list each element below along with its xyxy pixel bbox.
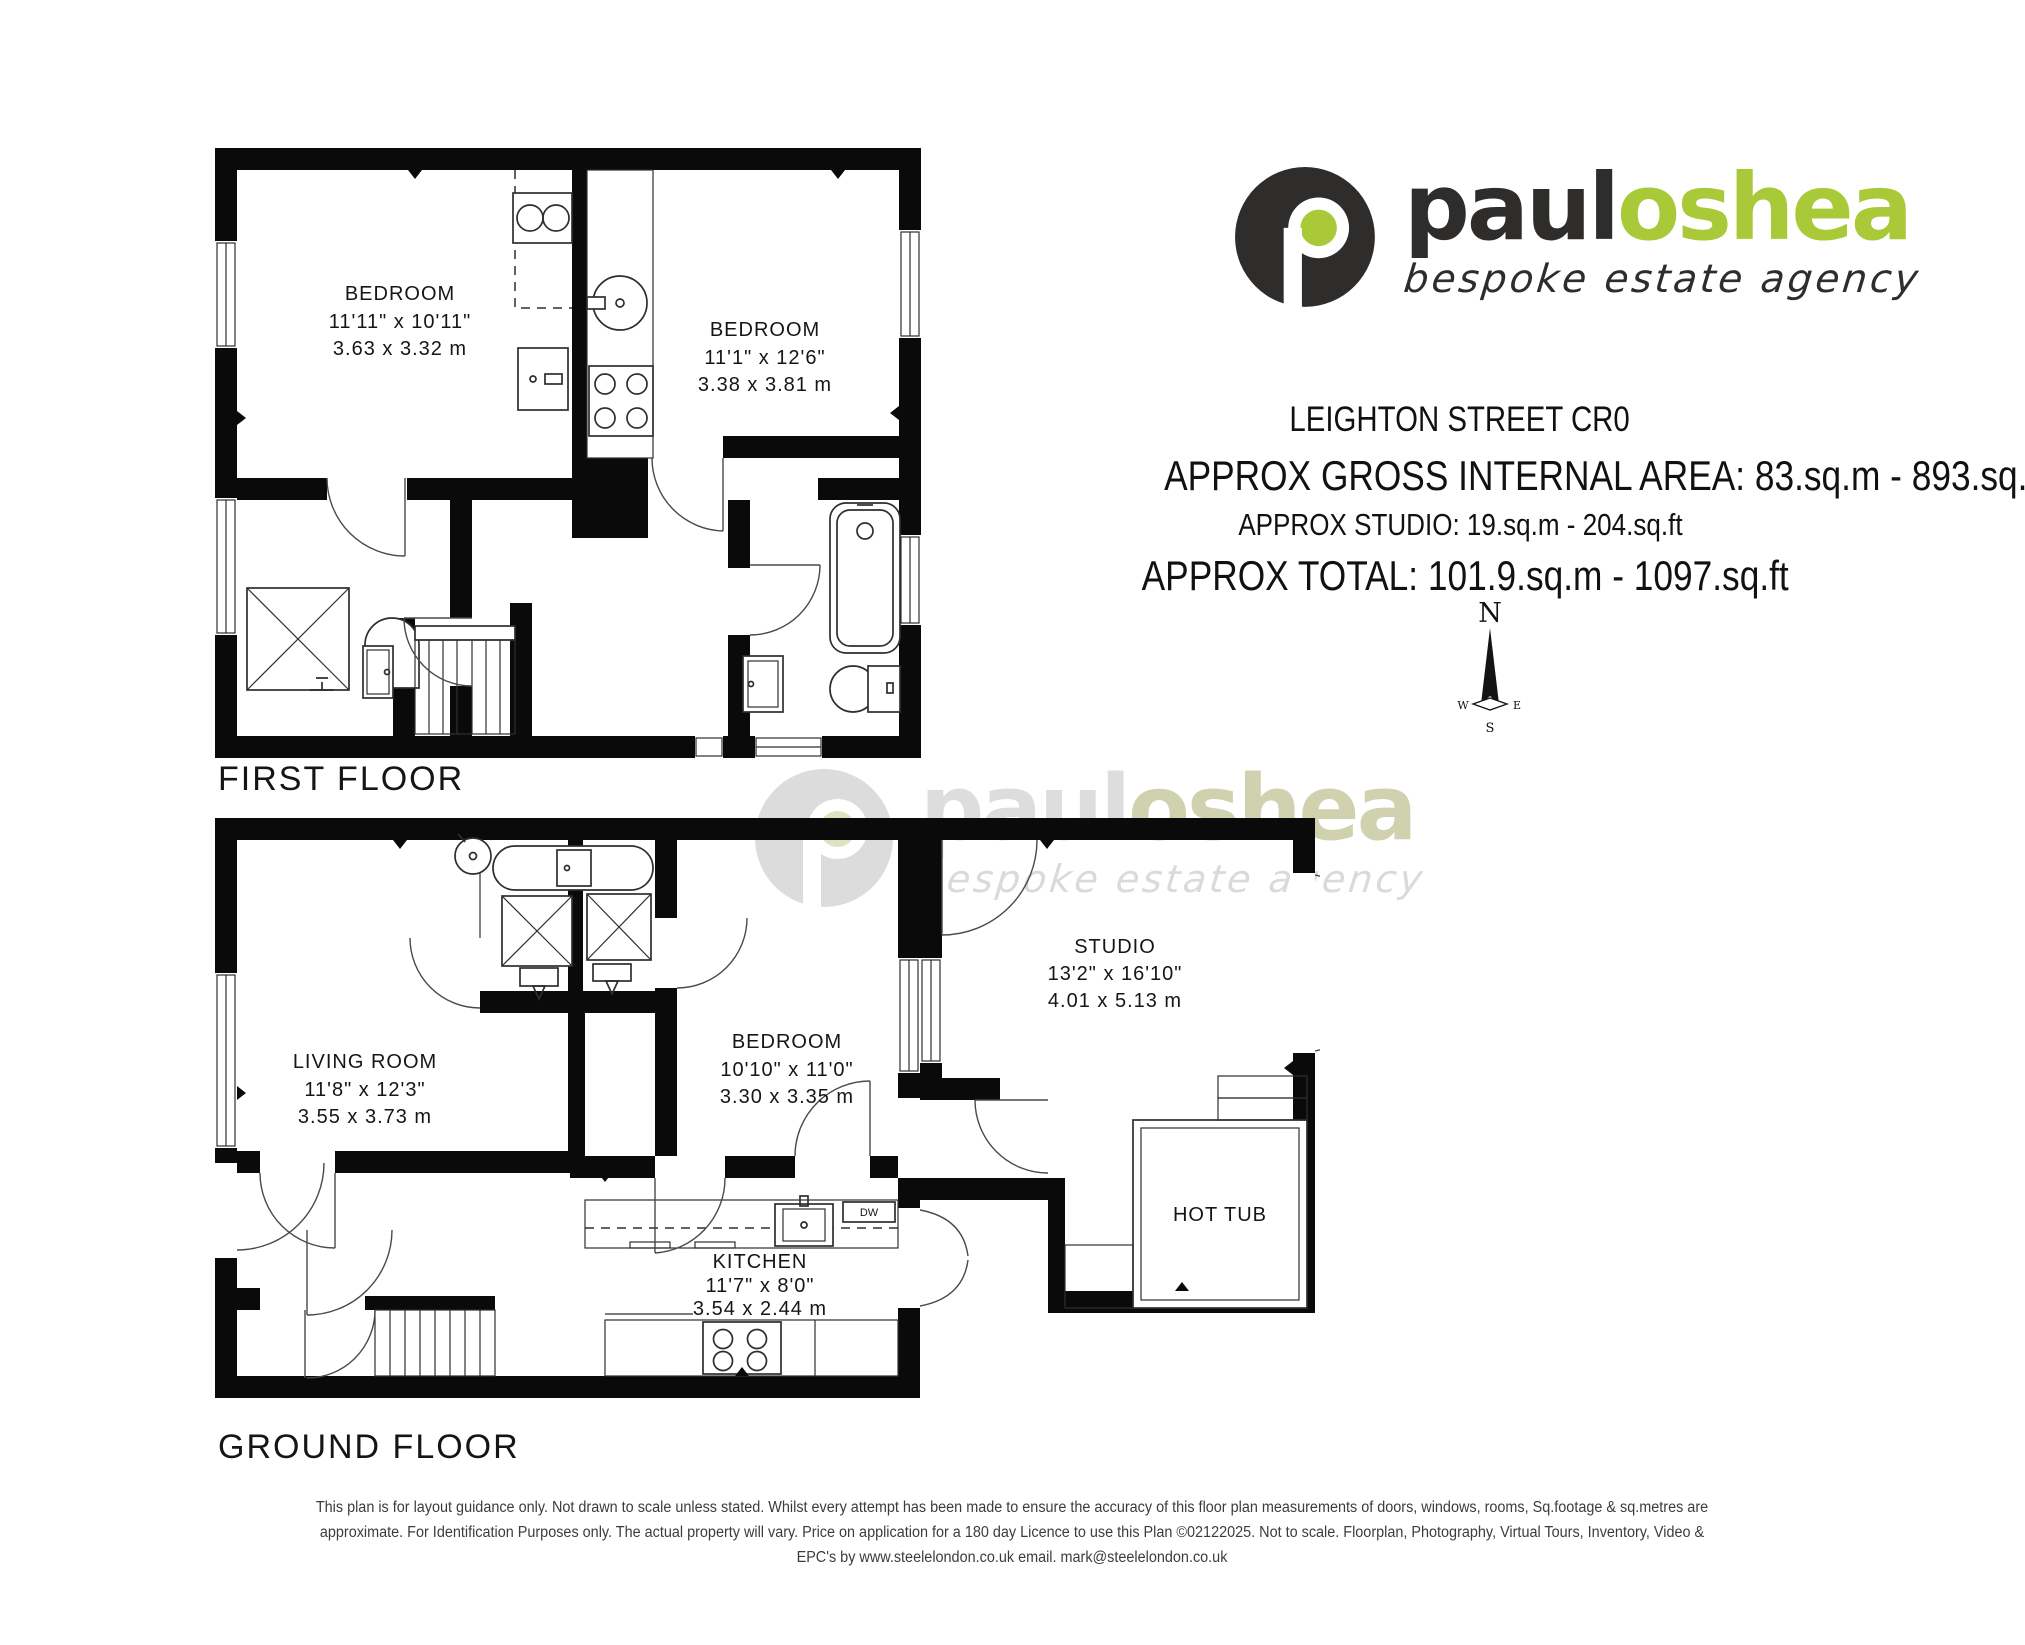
- disclaimer-text: This plan is for layout guidance only. N…: [305, 1496, 1719, 1570]
- agency-tagline: bespoke estate agency: [1402, 257, 1923, 302]
- compass-icon: N W E S: [1425, 592, 1555, 762]
- ground-floor-caption: GROUND FLOOR: [218, 1428, 520, 1467]
- room-dims-metric-bedroom-2: 3.38 x 3.81 m: [698, 374, 832, 396]
- gross-internal-area: APPROX GROSS INTERNAL AREA: 83.sq.m - 89…: [1164, 452, 2025, 500]
- room-label-bedroom-2: BEDROOM: [710, 319, 820, 341]
- room-dims-metric-bedroom-1: 3.63 x 3.32 m: [333, 338, 467, 360]
- room-dims-imperial-bedroom-2: 11'1" x 12'6": [704, 347, 825, 369]
- ground-floor-stairs-icon: [375, 1310, 495, 1376]
- room-dims-imperial-studio: 13'2" x 16'10": [1048, 963, 1183, 985]
- room-dims-metric-kitchen: 3.54 x 2.44 m: [693, 1298, 827, 1320]
- hot-tub-label: HOT TUB: [1173, 1204, 1267, 1226]
- dishwasher-label: DW: [860, 1207, 879, 1219]
- room-dims-imperial-bedroom: 10'10" x 11'0": [720, 1059, 853, 1081]
- agency-wordmark: pauloshea: [1404, 160, 1921, 257]
- room-dims-imperial-kitchen: 11'7" x 8'0": [705, 1275, 814, 1297]
- property-address: LEIGHTON STREET CR0: [1290, 400, 1630, 440]
- first-floor-bathroom-icons: [743, 503, 900, 712]
- ground-floor-plan: DW: [215, 818, 1320, 1418]
- room-label-bedroom-1: BEDROOM: [345, 283, 455, 305]
- compass-south-label: S: [1486, 721, 1495, 736]
- first-floor-shower-room-icons: [247, 588, 419, 698]
- compass-west-label: W: [1457, 699, 1469, 712]
- room-label-studio: STUDIO: [1074, 936, 1156, 958]
- compass-north-label: N: [1478, 598, 1502, 629]
- room-dims-imperial-bedroom-1: 11'11" x 10'11": [329, 311, 471, 333]
- room-dims-imperial-living-room: 11'8" x 12'3": [304, 1079, 425, 1101]
- room-label-bedroom: BEDROOM: [732, 1031, 842, 1053]
- floorplan-page: pauloshea bespoke estate agency pauloshe…: [0, 0, 2025, 1645]
- room-dims-metric-living-room: 3.55 x 3.73 m: [298, 1106, 432, 1128]
- studio-area: APPROX STUDIO: 19.sq.m - 204.sq.ft: [1238, 507, 1682, 543]
- ground-floor-studio-icons: [1065, 1076, 1307, 1308]
- property-summary: LEIGHTON STREET CR0 APPROX GROSS INTERNA…: [1080, 400, 1840, 600]
- agency-logo: pauloshea bespoke estate agency: [1232, 160, 1921, 320]
- room-label-kitchen: KITCHEN: [713, 1251, 808, 1273]
- ground-floor-ensuite-icons: [455, 834, 653, 999]
- compass-east-label: E: [1513, 699, 1521, 712]
- room-dims-metric-studio: 4.01 x 5.13 m: [1048, 990, 1182, 1012]
- room-dims-metric-bedroom: 3.30 x 3.35 m: [720, 1086, 854, 1108]
- agency-logo-mark-icon: [1232, 160, 1384, 320]
- first-floor-plan: BEDROOM 11'11" x 10'11" 3.63 x 3.32 m BE…: [215, 148, 921, 758]
- room-label-living-room: LIVING ROOM: [293, 1051, 437, 1073]
- first-floor-caption: FIRST FLOOR: [218, 760, 464, 799]
- ground-floor-room-labels: LIVING ROOM 11'8" x 12'3" 3.55 x 3.73 m …: [293, 936, 1267, 1320]
